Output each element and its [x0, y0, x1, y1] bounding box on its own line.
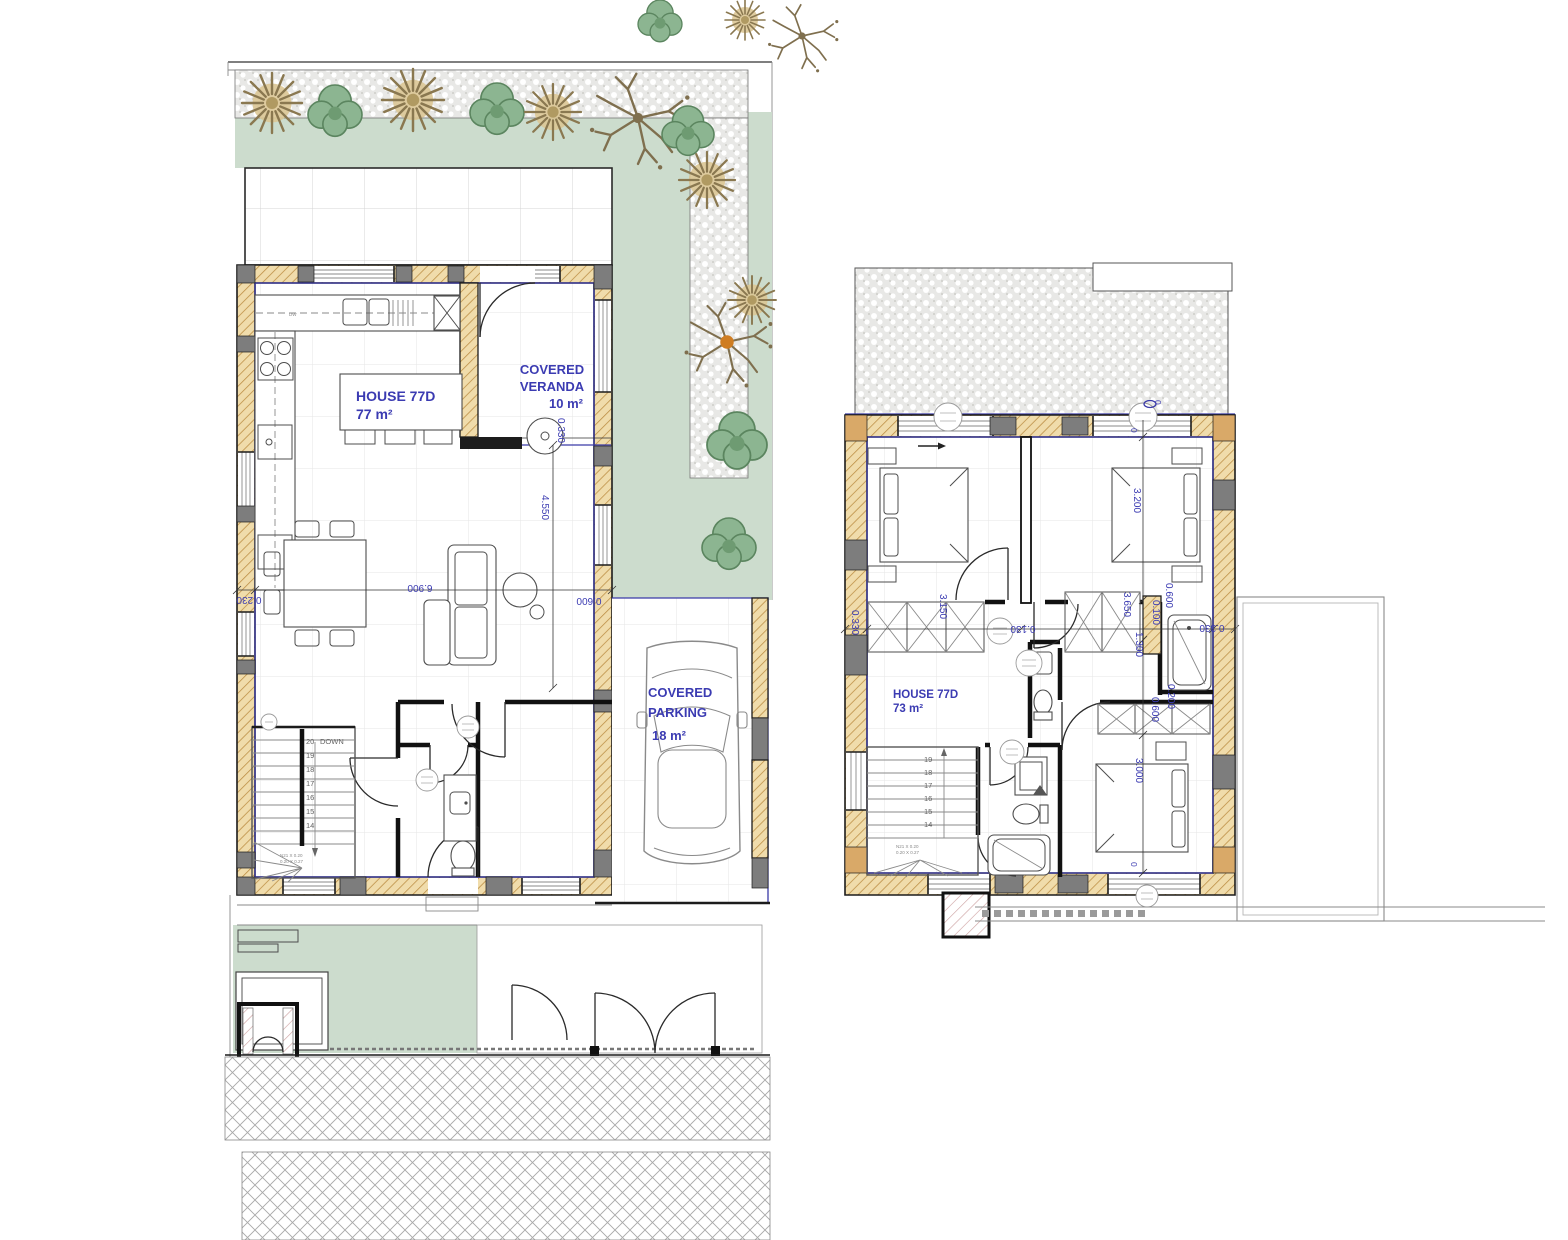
shower-icon: [1015, 757, 1047, 795]
stair-number: 16: [306, 793, 314, 802]
roof-step: [1093, 263, 1232, 291]
stair-note: 0.20 X 0.27: [896, 850, 920, 855]
stair-note: N21 X 0.20: [280, 853, 303, 858]
covered-parking: COVERED PARKING 18 m²: [595, 598, 770, 903]
shrub-icon: [725, 0, 765, 40]
plan-drawing: COVERED VERANDA 10 m² DW: [0, 0, 1568, 1240]
window: [522, 878, 580, 894]
stair-number: 16: [924, 794, 932, 803]
stair-note: N21 X 0.20: [896, 844, 919, 849]
dimension-text: 0.100: [1150, 600, 1161, 625]
dimension-text: 0.230: [236, 594, 261, 605]
chaise: [424, 600, 450, 665]
tag-circle: [987, 618, 1013, 644]
house-label: HOUSE 77D: [356, 388, 435, 404]
dimension-text: 0.330: [849, 610, 860, 635]
stair-number: 15: [306, 807, 314, 816]
veranda-label: COVERED: [520, 362, 584, 377]
road-hatch: [225, 1057, 770, 1140]
stair-number: 14: [924, 820, 932, 829]
stair-number: 17: [924, 781, 932, 790]
dimension-text: 3.650: [1121, 592, 1132, 617]
stair-note: 0.20 X 0.27: [280, 859, 304, 864]
house-area-label: 77 m²: [356, 406, 393, 422]
stair-number: 18: [924, 768, 932, 777]
dimension-text: 0.330: [1199, 622, 1224, 633]
dishwasher-label: DW: [289, 312, 297, 317]
dimension-text: 6.900: [407, 582, 432, 593]
stair-number: 14: [306, 821, 314, 830]
tag-circle: [934, 403, 962, 431]
shrub-icon: [242, 73, 302, 133]
tree-icon: [768, 5, 838, 73]
party-wall: [1021, 437, 1031, 603]
floor-plan-sheet: COVERED VERANDA 10 m² DW: [0, 0, 1568, 1240]
terrace-outline: [1237, 597, 1384, 921]
road-hatch: [242, 1152, 770, 1240]
level-mark: 0: [1129, 862, 1139, 867]
dimension-text: 3.150: [937, 594, 948, 619]
bed-icon: [1112, 448, 1202, 582]
veranda-area-label: 10 m²: [549, 396, 584, 411]
fridge-icon: [434, 296, 460, 330]
window: [312, 266, 394, 282]
tag-circle: [1016, 650, 1042, 676]
tag-circle: [457, 716, 479, 738]
house-label: HOUSE 77D: [893, 689, 958, 701]
bathtub-icon: [988, 835, 1050, 875]
patio-tiles: [245, 168, 612, 265]
stair-number: 19: [924, 755, 932, 764]
tag-circle: [261, 714, 277, 730]
house-area-label: 73 m²: [893, 703, 923, 715]
bush-icon: [638, 0, 682, 42]
front-yard: [225, 905, 770, 1240]
toilet-icon: [1034, 690, 1052, 714]
window: [928, 874, 990, 894]
dimension-text: 3.200: [1131, 488, 1142, 513]
stair-direction-label: DOWN: [320, 737, 344, 746]
level-mark: 0: [1129, 428, 1139, 433]
tag-circle: [1136, 885, 1158, 907]
toilet-icon: [451, 841, 475, 876]
dimension-text: 0.600: [576, 595, 601, 606]
level-mark: 0: [1153, 400, 1163, 405]
ground-floor-plan: COVERED VERANDA 10 m² DW: [225, 0, 838, 1240]
dimension-text: 3.000: [1133, 758, 1144, 783]
stair-number: 15: [924, 807, 932, 816]
dimension-text: 0.130: [1010, 623, 1035, 634]
tag-circle: [1000, 740, 1024, 764]
dimension-text: 0.330: [555, 418, 566, 443]
toilet-tank: [1034, 712, 1052, 720]
stair-number: 18: [306, 765, 314, 774]
dimension-text: 0.600: [1163, 583, 1174, 608]
shrub-icon: [382, 69, 444, 131]
first-floor-plan: 19 18 17 16 15 14 N21 X 0.20 0.20 X 0.27: [841, 263, 1545, 937]
shrub-icon: [679, 152, 735, 208]
dimension-text: 1.300: [1133, 632, 1144, 657]
stair-number: 19: [306, 751, 314, 760]
parking-label: COVERED: [648, 685, 712, 700]
veranda-wall: [460, 283, 478, 437]
stair-number: 20: [306, 737, 314, 746]
tag-circle: [416, 769, 438, 791]
stair-number: 17: [306, 779, 314, 788]
toilet-icon: [1013, 804, 1048, 824]
shrub-icon: [728, 276, 776, 324]
gravel-roof: [845, 263, 1235, 414]
parking-area-label: 18 m²: [652, 728, 687, 743]
window: [595, 505, 611, 565]
dimension-text: 4.550: [539, 495, 550, 520]
dimension-text: 0.600: [1149, 697, 1160, 722]
driveway: [477, 925, 762, 1053]
car: [637, 641, 747, 864]
bed-icon: [868, 448, 968, 582]
dimension-text: 0.200: [1165, 684, 1176, 709]
window: [846, 752, 866, 810]
window: [283, 878, 335, 894]
shrub-icon: [525, 84, 581, 140]
window: [238, 452, 254, 508]
window: [595, 300, 611, 392]
window: [238, 612, 254, 656]
veranda-wall-end: [460, 437, 522, 449]
veranda-label: VERANDA: [520, 379, 585, 394]
parking-label: PARKING: [648, 705, 707, 720]
washbasin-icon: [444, 775, 476, 841]
